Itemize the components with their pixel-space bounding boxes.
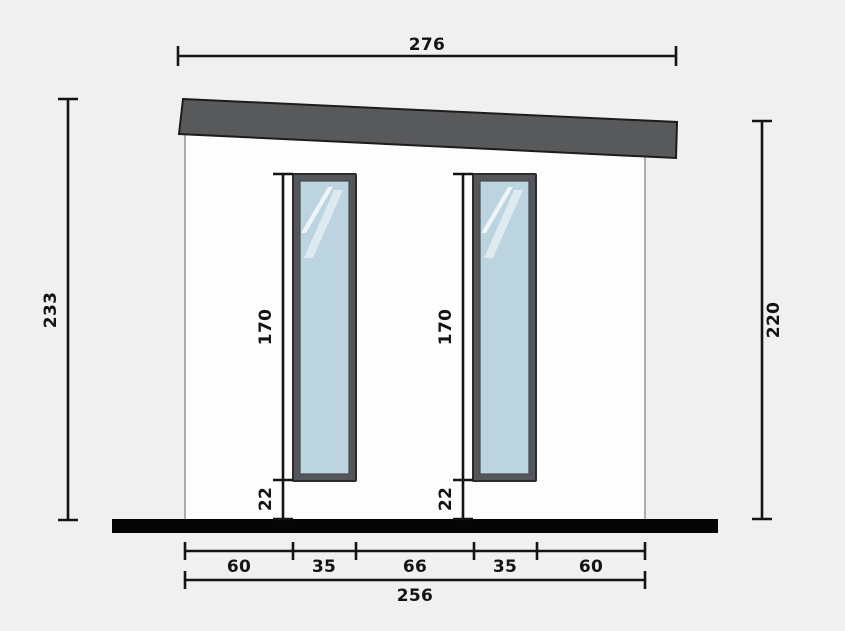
label-segment-5: 60 [579,557,603,577]
label-segment-1: 60 [227,557,251,577]
label-window2-height: 170 [436,309,456,345]
window-1 [293,174,356,481]
label-base-width: 256 [397,586,433,606]
label-segment-2: 35 [312,557,336,577]
elevation-drawing: 276 233 220 170 22 170 22 60 35 66 35 60… [0,0,845,631]
label-window2-sill: 22 [436,487,456,511]
label-window1-height: 170 [256,309,276,345]
floor-bar [112,519,718,533]
label-segment-3: 66 [403,557,427,577]
label-left-height: 233 [41,292,61,328]
wall [185,132,645,525]
label-right-height: 220 [764,302,784,338]
label-roof-width: 276 [409,35,445,55]
window-2 [473,174,536,481]
label-window1-sill: 22 [256,487,276,511]
label-segment-4: 35 [493,557,517,577]
drawing-svg: 276 233 220 170 22 170 22 60 35 66 35 60… [0,0,845,631]
